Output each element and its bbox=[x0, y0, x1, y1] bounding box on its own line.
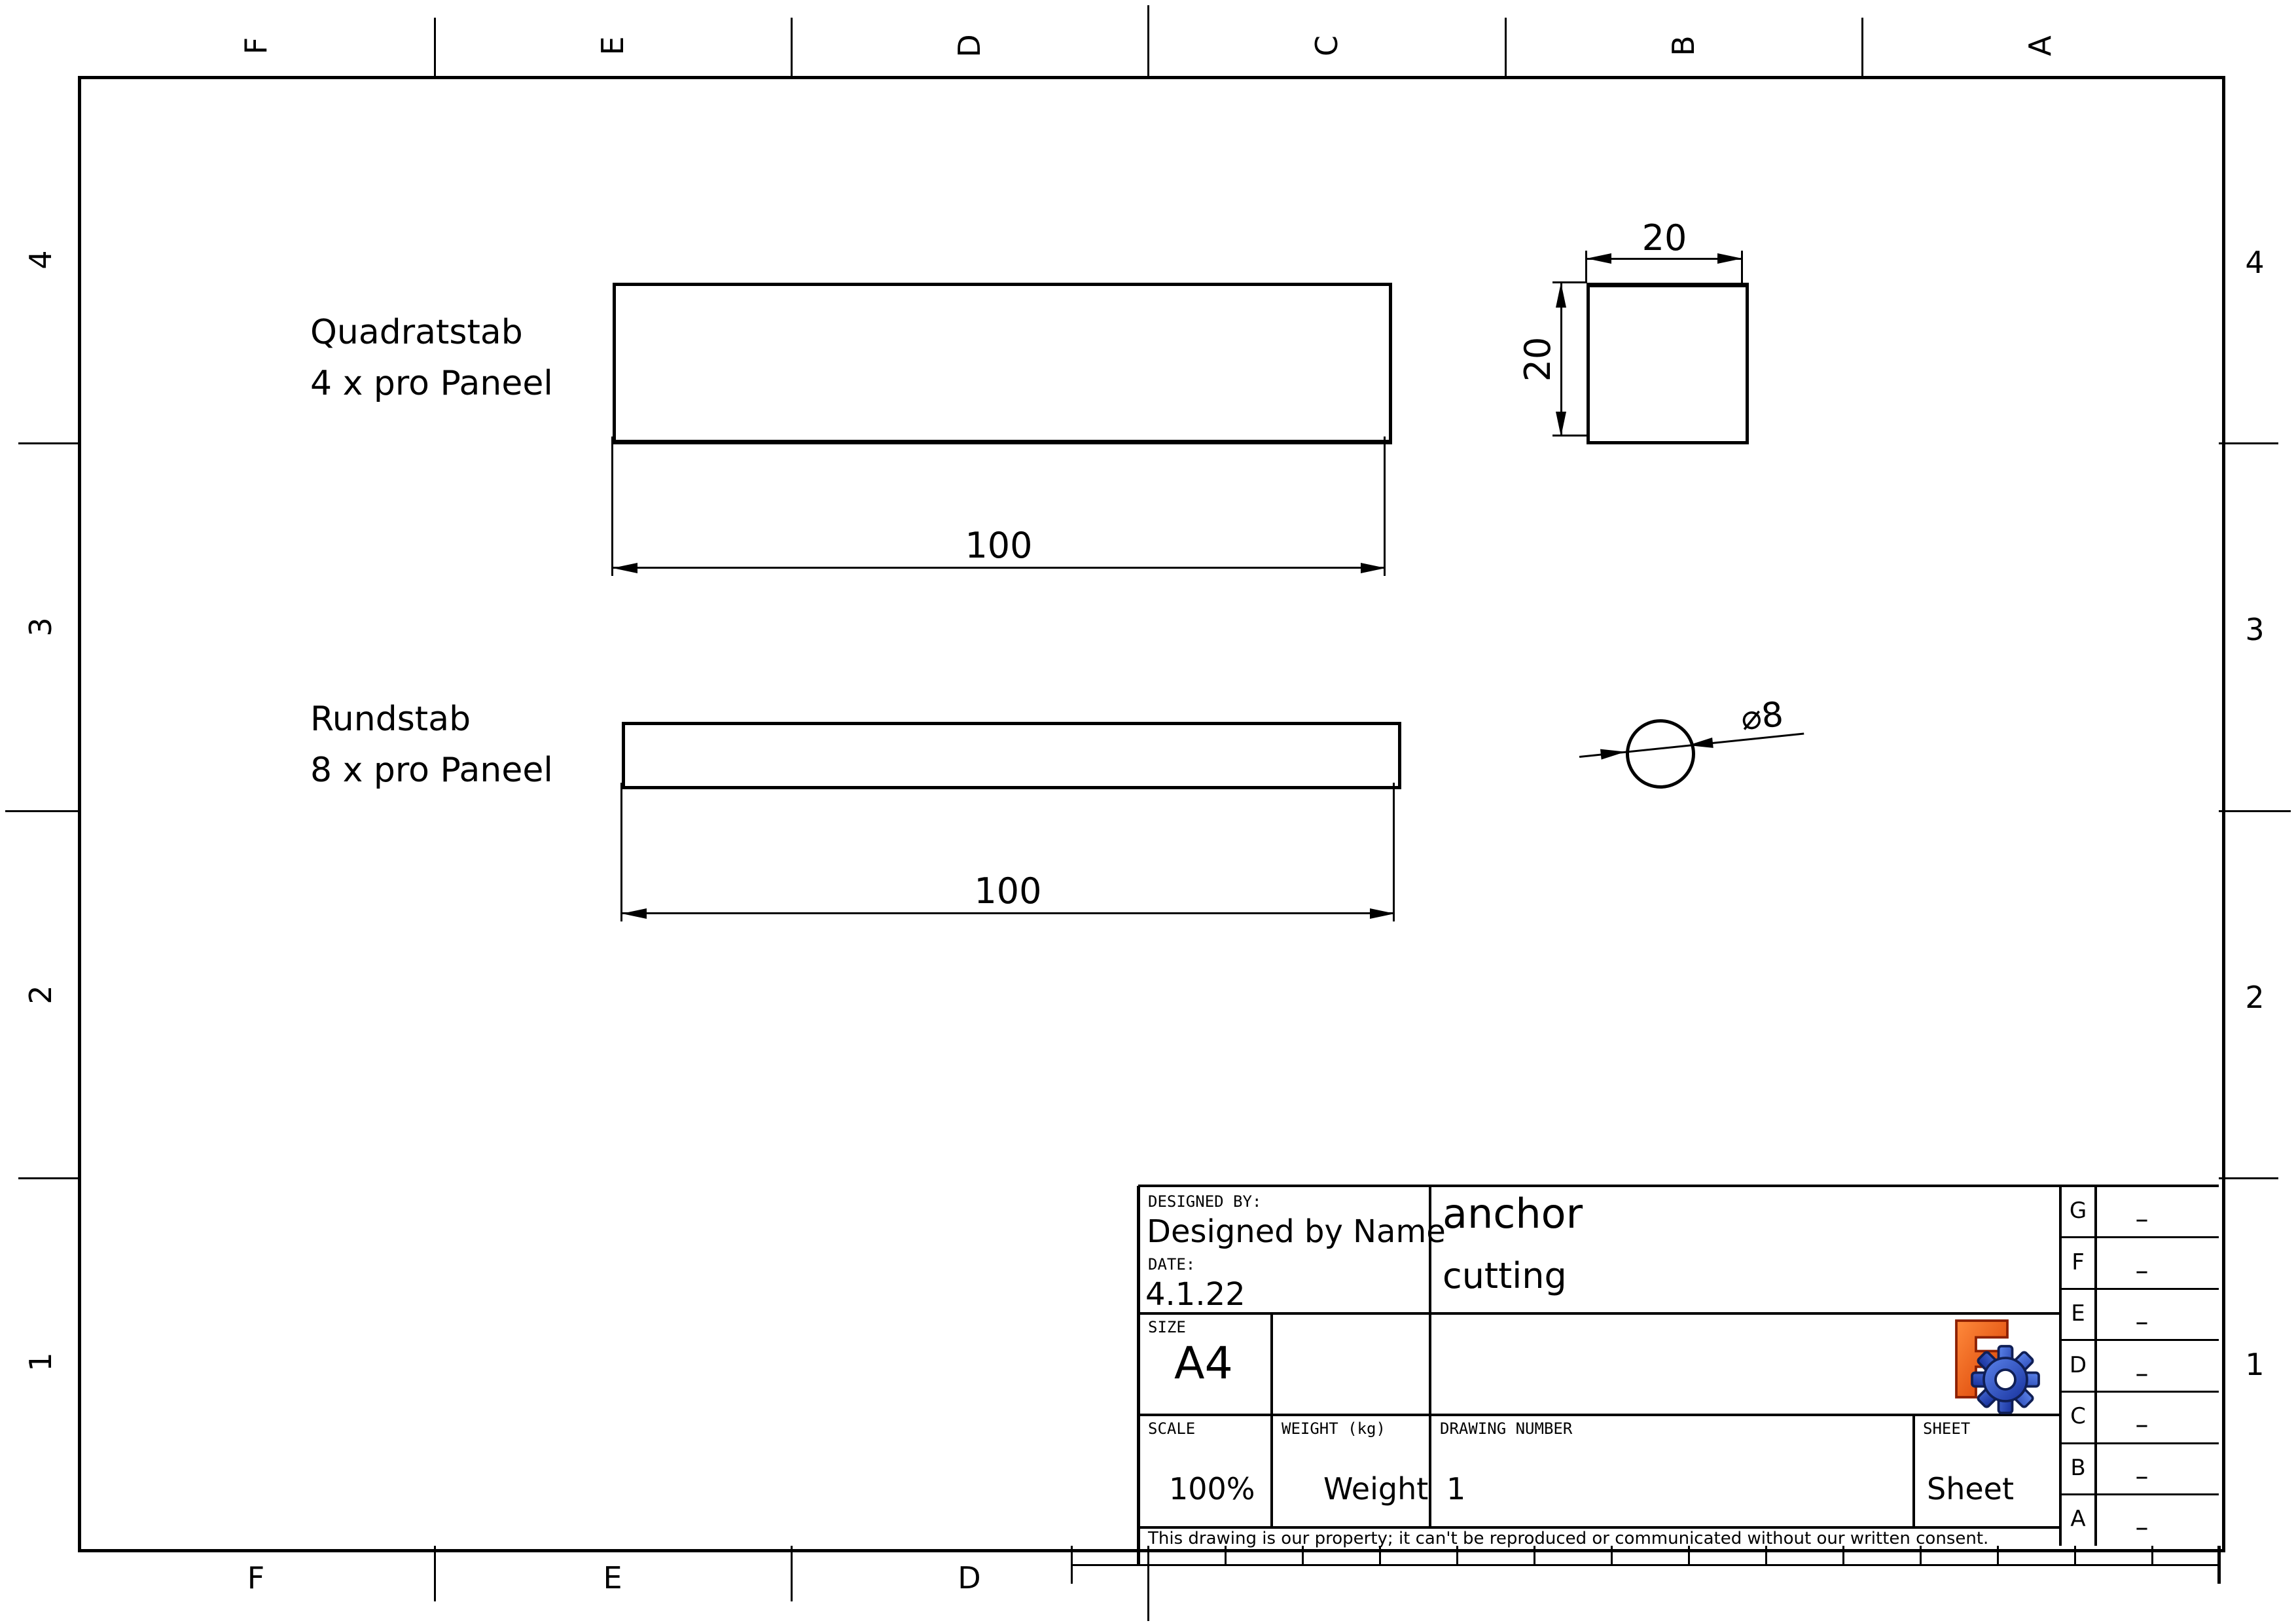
dimension-value: 20 bbox=[1599, 217, 1730, 259]
revision-letter: C bbox=[2060, 1403, 2096, 1429]
revision-letter: F bbox=[2060, 1249, 2096, 1275]
extension-line bbox=[620, 783, 622, 921]
dimension-value: ⌀8 bbox=[1739, 695, 1785, 738]
zone-letter-top: A bbox=[2025, 7, 2055, 85]
revision-value: – bbox=[2101, 1512, 2183, 1543]
ruler-tick bbox=[1765, 1546, 1767, 1565]
dim-arrow-down bbox=[1556, 412, 1566, 437]
part-label-line1: Rundstab bbox=[310, 700, 471, 739]
square-section-outline bbox=[1587, 283, 1749, 444]
scale-label: SCALE bbox=[1148, 1419, 1195, 1438]
revision-value: – bbox=[2101, 1410, 2183, 1440]
dim-arrow-left bbox=[613, 563, 637, 573]
zone-number-left: 1 bbox=[26, 1323, 56, 1401]
zone-number-left: 4 bbox=[26, 221, 56, 299]
ruler-line bbox=[1071, 1564, 2221, 1566]
circle-section-outline bbox=[1626, 719, 1695, 789]
drawing-subtitle: cutting bbox=[1443, 1255, 1567, 1296]
zone-number-right: 4 bbox=[2215, 245, 2294, 280]
zone-letter-bottom: F bbox=[217, 1560, 295, 1596]
ruler-tick bbox=[1920, 1546, 1922, 1565]
revision-line bbox=[2062, 1339, 2219, 1341]
designed-by-label: DESIGNED BY: bbox=[1148, 1192, 1261, 1211]
dim-arrow-left bbox=[622, 908, 647, 919]
zone-letter-top: F bbox=[241, 7, 271, 85]
ruler-tick bbox=[1842, 1546, 1844, 1565]
revision-line bbox=[2062, 1288, 2219, 1290]
quadratstab-outline bbox=[613, 283, 1392, 444]
zone-letter-bottom: E bbox=[573, 1560, 652, 1596]
revision-value: – bbox=[2101, 1256, 2183, 1286]
size-label: SIZE bbox=[1148, 1318, 1186, 1336]
dim-arrow-right bbox=[1370, 908, 1395, 919]
zone-number-right: 2 bbox=[2215, 980, 2294, 1015]
zone-tick bbox=[791, 1546, 793, 1601]
zone-tick bbox=[434, 18, 436, 76]
revision-value: – bbox=[2101, 1307, 2183, 1337]
revision-line bbox=[2062, 1391, 2219, 1393]
revision-letter: E bbox=[2060, 1300, 2096, 1327]
revision-letter: A bbox=[2060, 1506, 2096, 1532]
rundstab-outline bbox=[622, 722, 1401, 789]
ruler-tick bbox=[2074, 1546, 2076, 1565]
dimension-line bbox=[622, 912, 1395, 914]
zone-tick-center bbox=[1147, 5, 1149, 76]
dim-arrow-up bbox=[1556, 283, 1566, 308]
ruler-tick bbox=[1611, 1546, 1613, 1565]
zone-tick bbox=[18, 1177, 78, 1179]
weight-label: WEIGHT (kg) bbox=[1282, 1419, 1386, 1438]
size-value: A4 bbox=[1174, 1338, 1233, 1389]
zone-number-left: 3 bbox=[26, 588, 56, 666]
drawing-number-value: 1 bbox=[1446, 1471, 1465, 1507]
ruler-tick bbox=[1688, 1546, 1690, 1565]
ruler-tick bbox=[1534, 1546, 1535, 1565]
revision-value: – bbox=[2101, 1204, 2183, 1234]
extension-line bbox=[1393, 783, 1395, 921]
designed-by-value: Designed by Name bbox=[1147, 1213, 1446, 1250]
dimension-value: 100 bbox=[933, 525, 1064, 566]
titleblock-line bbox=[1138, 1312, 2060, 1315]
disclaimer-text: This drawing is our property; it can't b… bbox=[1148, 1529, 1988, 1548]
extension-line bbox=[1384, 437, 1386, 576]
extension-line bbox=[611, 437, 613, 576]
date-value: 4.1.22 bbox=[1145, 1276, 1246, 1313]
sheet-label: SHEET bbox=[1923, 1419, 1970, 1438]
zone-tick bbox=[18, 442, 78, 444]
zone-tick bbox=[2219, 442, 2278, 444]
ruler-tick bbox=[1456, 1546, 1458, 1565]
drawing-title: anchor bbox=[1443, 1190, 1583, 1238]
revision-letter: G bbox=[2060, 1198, 2096, 1224]
revision-line bbox=[2062, 1236, 2219, 1238]
scale-value: 100% bbox=[1169, 1471, 1255, 1507]
drawing-number-label: DRAWING NUMBER bbox=[1440, 1419, 1572, 1438]
dimension-value: 100 bbox=[942, 870, 1073, 912]
zone-letter-top: E bbox=[598, 7, 628, 85]
zone-number-right: 1 bbox=[2215, 1347, 2294, 1382]
ruler-tick bbox=[1379, 1546, 1381, 1565]
part-label-line2: 8 x pro Paneel bbox=[310, 751, 553, 790]
zone-letter-top: B bbox=[1668, 7, 1698, 85]
zone-letter-bottom: D bbox=[930, 1560, 1009, 1596]
zone-letter-top: C bbox=[1312, 7, 1342, 85]
ruler-tick bbox=[1225, 1546, 1227, 1565]
ruler-tick bbox=[2217, 1546, 2221, 1584]
ruler-tick bbox=[1071, 1546, 1073, 1584]
titleblock-line bbox=[1138, 1185, 2219, 1187]
sheet-value: Sheet bbox=[1927, 1471, 2014, 1507]
zone-tick bbox=[1861, 18, 1863, 76]
zone-letter-top: D bbox=[954, 7, 984, 85]
date-label: DATE: bbox=[1148, 1255, 1195, 1274]
zone-tick bbox=[2219, 1177, 2278, 1179]
drawing-sheet: F E D C B A F E D 4 3 2 1 4 3 2 1 Quadra… bbox=[0, 0, 2296, 1623]
zone-number-right: 3 bbox=[2215, 612, 2294, 647]
ruler-tick bbox=[2151, 1546, 2153, 1565]
ruler-tick bbox=[1997, 1546, 1999, 1565]
ruler-tick bbox=[1302, 1546, 1304, 1565]
revision-line bbox=[2062, 1442, 2219, 1444]
zone-tick bbox=[434, 1546, 436, 1601]
revision-value: – bbox=[2101, 1461, 2183, 1491]
titleblock-line bbox=[1912, 1415, 1915, 1527]
revision-line bbox=[2062, 1493, 2219, 1495]
revision-letter: D bbox=[2060, 1352, 2096, 1378]
titleblock-line bbox=[1137, 1186, 1140, 1565]
revision-value: – bbox=[2101, 1359, 2183, 1389]
titleblock-line bbox=[1138, 1414, 2060, 1416]
zone-tick bbox=[791, 18, 793, 76]
freecad-logo-icon bbox=[1943, 1317, 2041, 1415]
zone-tick-center bbox=[5, 810, 78, 812]
dimension-value: 20 bbox=[1520, 294, 1556, 425]
weight-value: Weight bbox=[1323, 1471, 1428, 1507]
part-label-line2: 4 x pro Paneel bbox=[310, 364, 553, 403]
logo-gear bbox=[1972, 1346, 2039, 1413]
titleblock-line bbox=[1270, 1313, 1273, 1527]
part-label-line1: Quadratstab bbox=[310, 313, 523, 352]
revision-letter: B bbox=[2060, 1455, 2096, 1481]
zone-number-left: 2 bbox=[26, 955, 56, 1034]
zone-tick bbox=[1505, 18, 1507, 76]
zone-tick-center bbox=[1147, 1546, 1149, 1621]
dimension-line bbox=[613, 567, 1386, 569]
zone-tick-center bbox=[2219, 810, 2291, 812]
dim-arrow-right bbox=[1361, 563, 1386, 573]
